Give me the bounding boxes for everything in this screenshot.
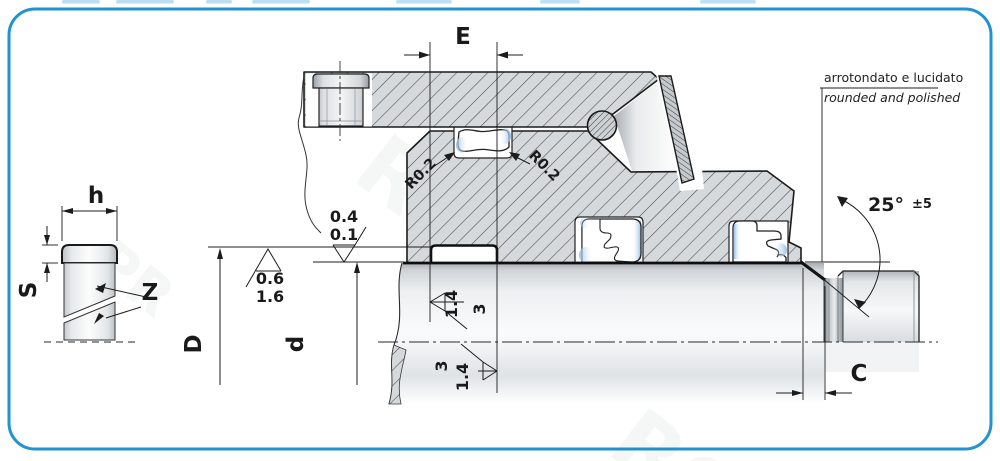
note-english: rounded and polished (824, 90, 960, 105)
label-E: E (455, 24, 471, 50)
technical-drawing: PR RO N RO (0, 0, 1000, 461)
angle-value: 25° (868, 194, 904, 216)
roughness-bore-upper: 0.6 (256, 269, 284, 288)
roughness-rod-lower-a: 3 (432, 360, 451, 371)
label-C: C (851, 361, 868, 387)
label-h: h (88, 183, 104, 209)
mini-section (62, 245, 117, 340)
mini-cap (62, 245, 117, 263)
o-ring (588, 111, 617, 140)
label-S: S (16, 282, 42, 299)
roughness-rod-upper-b: 3 (470, 303, 489, 314)
roughness-groove-upper: 0.4 (330, 207, 358, 226)
angle-tolerance: ±5 (912, 197, 932, 212)
static-seal (456, 128, 511, 153)
roughness-rod-upper-a: 1.4 (442, 290, 461, 318)
backup-ring (431, 246, 497, 263)
rod-seal (579, 218, 641, 263)
rod-end-boss (843, 271, 919, 342)
roughness-groove-lower: 0.1 (330, 225, 358, 244)
roughness-rod-lower-b: 1.4 (453, 363, 472, 391)
roughness-bore-lower: 1.6 (256, 287, 284, 306)
label-D: D (181, 334, 207, 353)
note-italian: arrotondato e lucidato (824, 70, 963, 85)
label-d: d (283, 336, 309, 352)
screw-plug (313, 74, 369, 126)
label-Z: Z (142, 280, 159, 306)
seal-installation-diagram: PR RO N RO (0, 0, 1000, 461)
